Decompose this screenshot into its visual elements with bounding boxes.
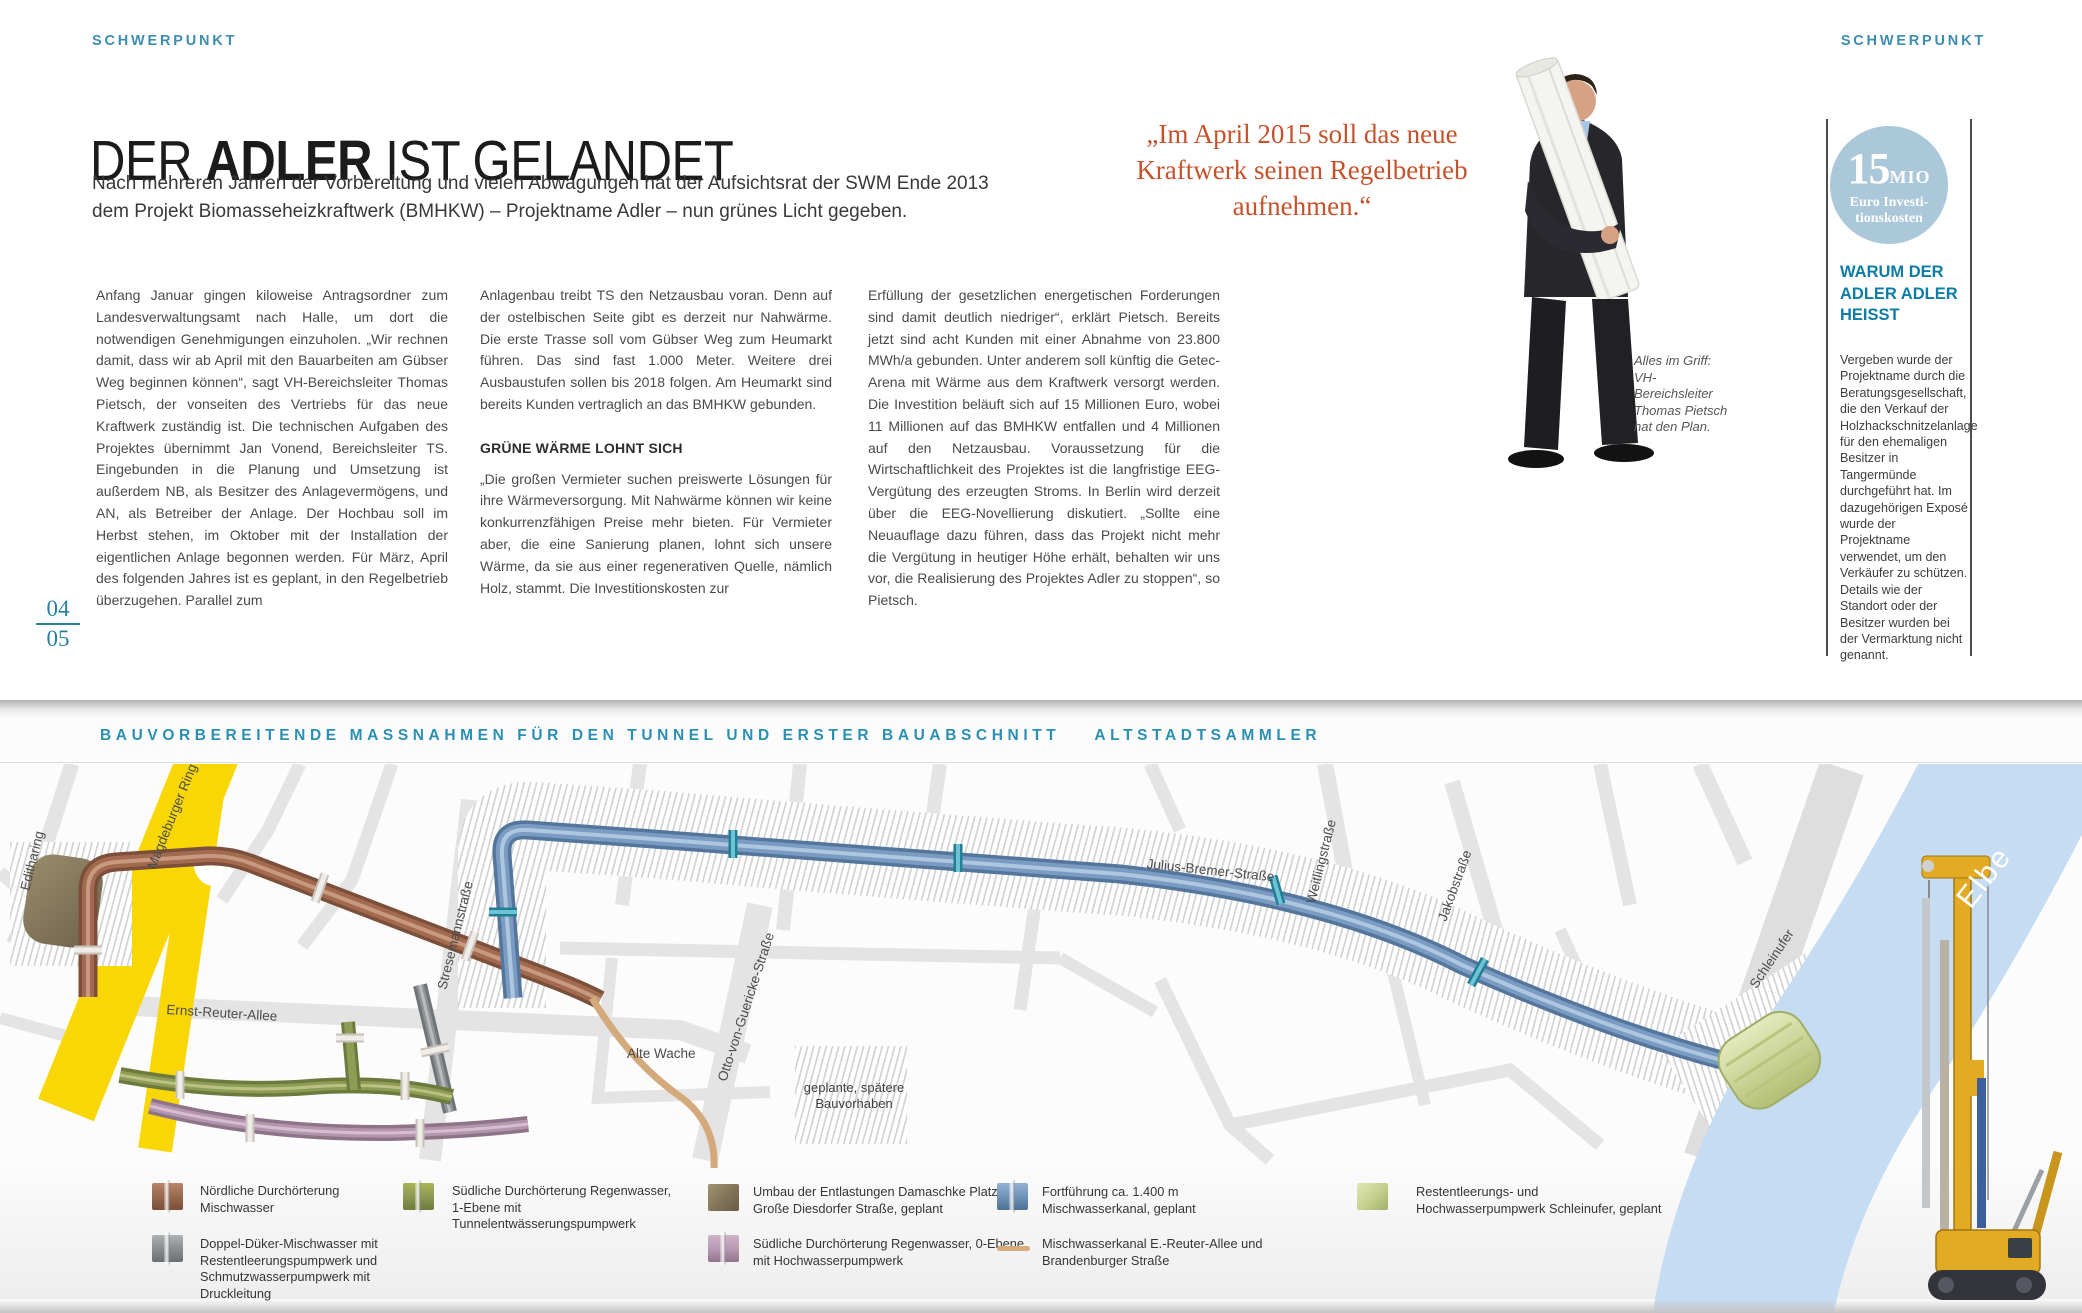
legend-label: Nördliche Durchörterung Mischwasser xyxy=(200,1183,380,1216)
body-column-2: Anlagenbau treibt TS den Netzausbau vora… xyxy=(480,285,832,599)
body-subheading: GRÜNE WÄRME LOHNT SICH xyxy=(480,438,832,460)
sidebar-body: Vergeben wurde der Projektname durch die… xyxy=(1840,352,1968,664)
pipe-ring-icon xyxy=(164,1180,170,1213)
map-title: BAUVORBEREITENDE MASSNAHMEN FÜR DEN TUNN… xyxy=(100,727,1321,745)
pipe-ring-icon xyxy=(1009,1180,1015,1213)
body-column-2-paragraph-2: „Die großen Vermieter suchen preiswerte … xyxy=(480,469,832,600)
construction-map xyxy=(0,764,2082,1313)
body-column-2-paragraph: Anlagenbau treibt TS den Netzausbau vora… xyxy=(480,285,832,416)
page-number-divider xyxy=(36,623,80,625)
legend-swatch-restentleerung xyxy=(1357,1183,1388,1210)
pipe-ring-icon xyxy=(164,1232,170,1265)
page-number: 04 05 xyxy=(34,596,82,652)
map-note-geplante-bauvorhaben: geplante, spätere Bauvorhaben xyxy=(798,1080,910,1112)
band-top-shadow xyxy=(0,700,2082,718)
article-intro: Nach mehreren Jahren der Vorbereitung un… xyxy=(92,170,997,226)
legend-label: Fortführung ca. 1.400 m Mischwasserkanal… xyxy=(1042,1184,1247,1217)
sidebar-heading: WARUM DER ADLER ADLER HEISST xyxy=(1840,262,1968,327)
legend-label: Südliche Durchörterung Regenwasser, 1-Eb… xyxy=(452,1183,672,1233)
section-kicker-left: SCHWERPUNKT xyxy=(92,33,237,49)
photo-caption: Alles im Griff: VH-Bereichsleiter Thomas… xyxy=(1634,353,1728,436)
legend-label: Mischwasserkanal E.-Reuter-Allee und Bra… xyxy=(1042,1236,1287,1269)
sidebar-rule-left xyxy=(1826,119,1828,656)
stat-unit: MIO xyxy=(1890,167,1931,187)
investment-stat-badge: 15MIO Euro Investi- tionskosten xyxy=(1830,126,1948,244)
legend-swatch-doppel-dueker xyxy=(152,1235,183,1262)
pipe-ring-icon xyxy=(415,1180,421,1213)
sidebar-rule-right xyxy=(1970,119,1972,656)
man-figure xyxy=(1508,55,1654,468)
pull-quote: „Im April 2015 soll das neue Kraftwerk s… xyxy=(1118,116,1486,224)
stat-caption-line1: Euro Investi- xyxy=(1830,195,1948,211)
map-title-sub: ALTSTADTSAMMLER xyxy=(1094,727,1321,744)
pipe-suedliche-0-ebene xyxy=(150,1106,528,1133)
legend-label: Restentleerungs- und Hochwasserpumpwerk … xyxy=(1416,1184,1666,1217)
bottom-page-shadow xyxy=(0,1299,2082,1313)
stat-value: 15 xyxy=(1848,144,1890,193)
legend-swatch-suedliche-1 xyxy=(403,1183,434,1210)
legend-swatch-fortfuehrung xyxy=(997,1183,1028,1210)
legend-swatch-noerdliche xyxy=(152,1183,183,1210)
body-column-3: Erfüllung der gesetzlichen energetischen… xyxy=(868,285,1220,612)
map-title-main: BAUVORBEREITENDE MASSNAHMEN FÜR DEN TUNN… xyxy=(100,727,1060,744)
magazine-spread: { "page": { "kicker_left": "SCHWERPUNKT"… xyxy=(0,0,2082,1313)
page-number-top: 04 xyxy=(34,596,82,622)
stat-caption-line2: tionskosten xyxy=(1830,211,1948,227)
legend-swatch-umbau xyxy=(708,1184,739,1211)
legend-label: Doppel-Düker-Mischwasser mit Restentleer… xyxy=(200,1236,438,1302)
page-number-bottom: 05 xyxy=(34,626,82,652)
legend-label: Südliche Durchörterung Regenwasser, 0-Eb… xyxy=(753,1236,1033,1269)
section-kicker-right: SCHWERPUNKT xyxy=(1841,33,1986,49)
legend-swatch-kanal-line xyxy=(997,1246,1030,1251)
pipe-ring-icon xyxy=(720,1232,726,1265)
map-divider-line xyxy=(0,762,2082,763)
street-label-alte-wache: Alte Wache xyxy=(627,1046,696,1061)
legend-swatch-suedliche-0 xyxy=(708,1235,739,1262)
body-column-1: Anfang Januar gingen kiloweise Antragsor… xyxy=(96,285,448,612)
